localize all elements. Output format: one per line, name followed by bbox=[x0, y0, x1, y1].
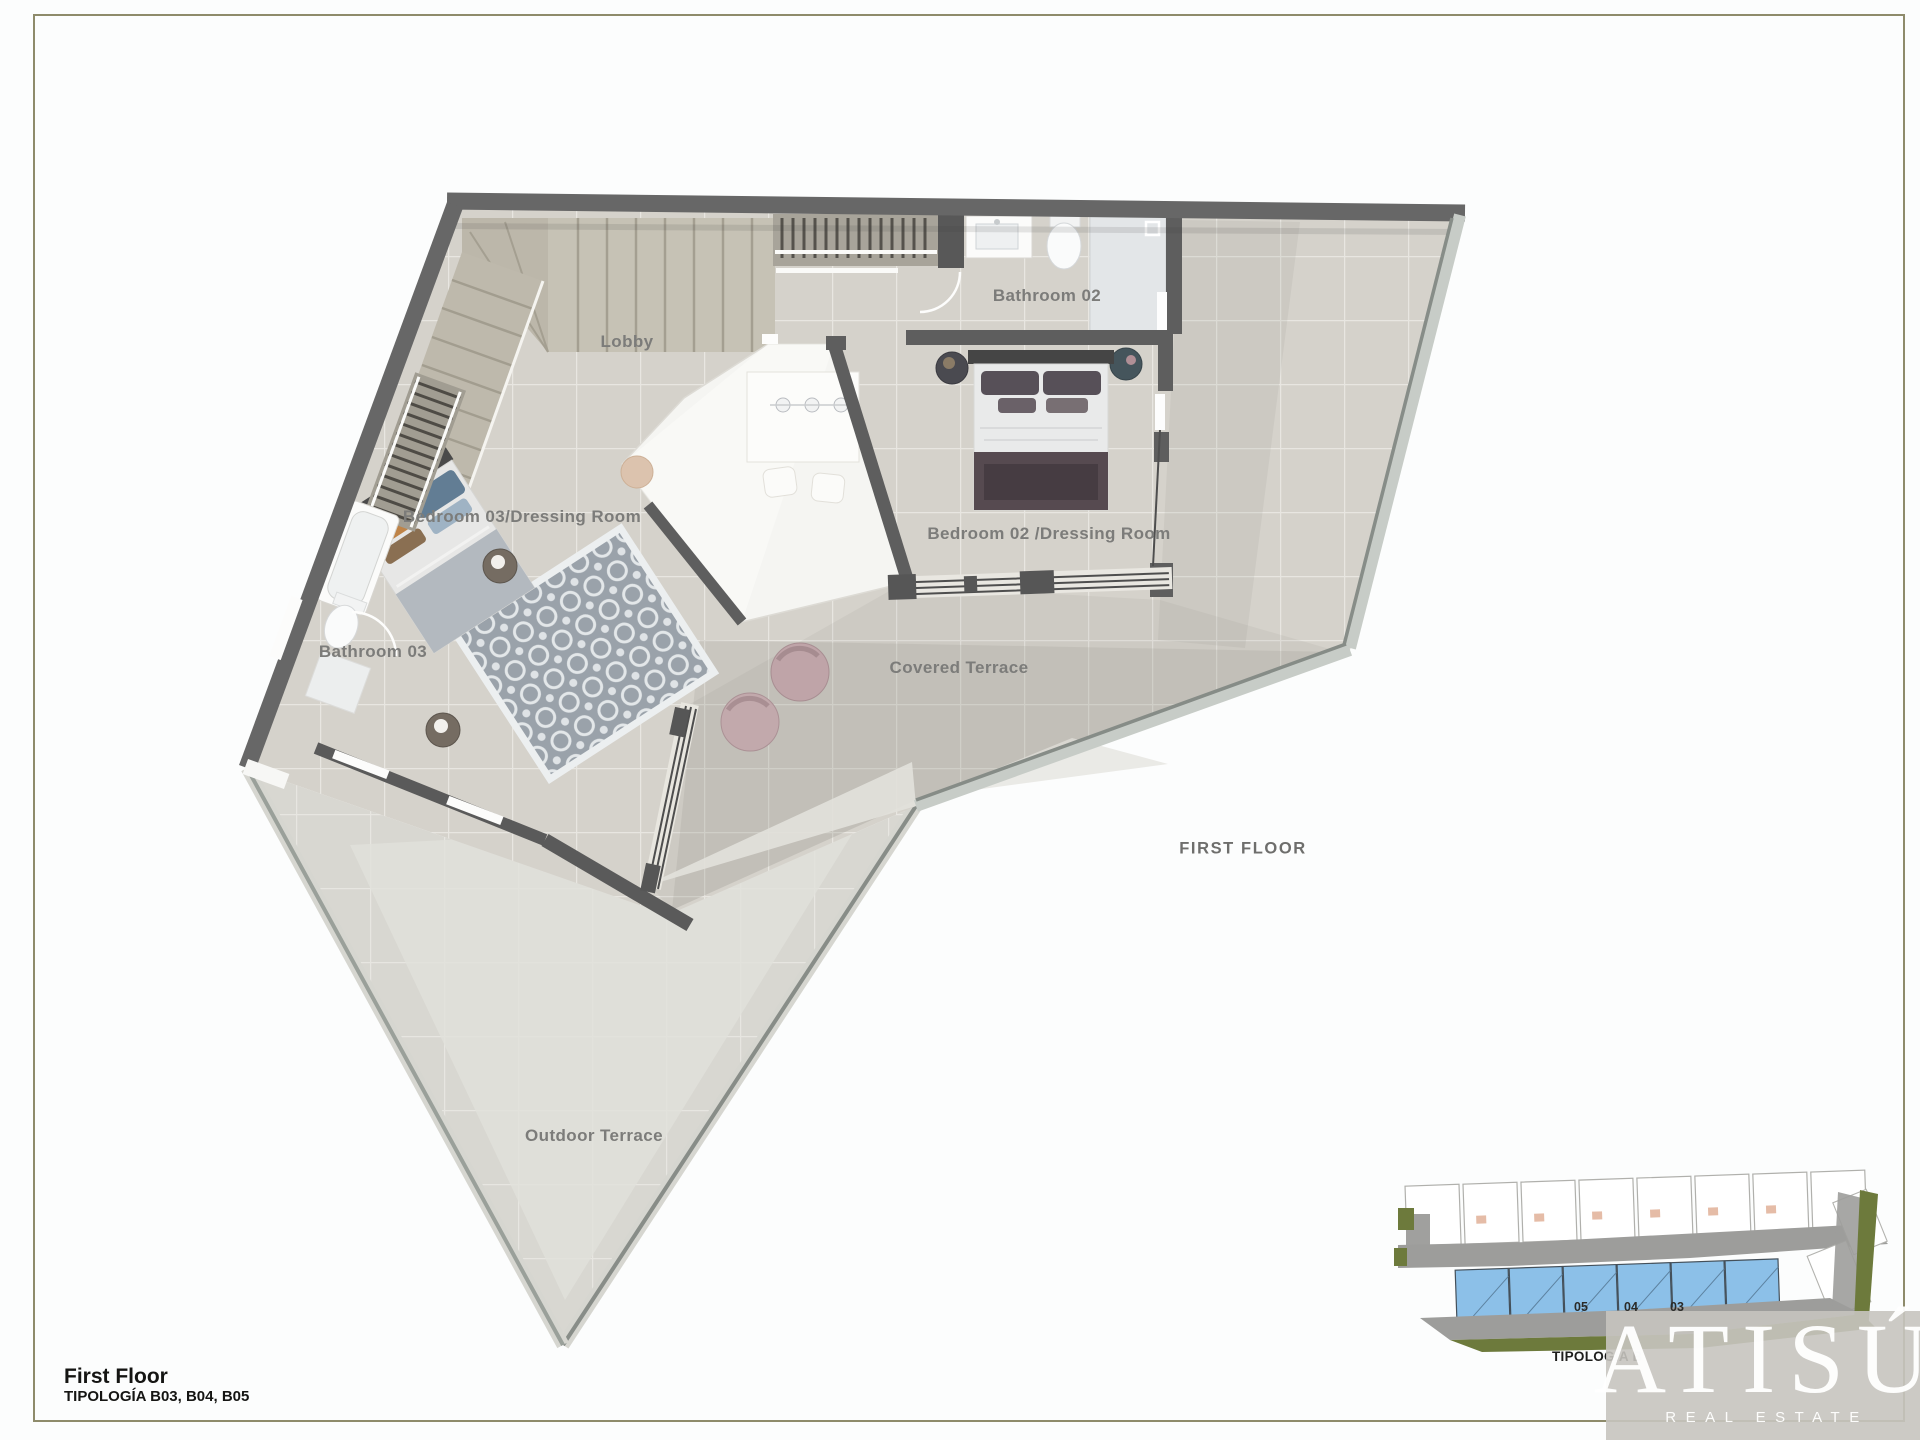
brand-logo: ATISÚ REAL ESTATE bbox=[1606, 1311, 1920, 1440]
room-label-bathroom-03: Bathroom 03 bbox=[319, 642, 427, 662]
room-label-bedroom-02: Bedroom 02 /Dressing Room bbox=[927, 524, 1170, 544]
room-label-outdoor-terrace: Outdoor Terrace bbox=[525, 1126, 663, 1146]
room-label-covered-terrace: Covered Terrace bbox=[890, 658, 1029, 678]
room-label-bedroom-03: Bedroom 03/Dressing Room bbox=[403, 507, 641, 527]
room-label-lobby: Lobby bbox=[601, 332, 654, 352]
room-label-bathroom-02: Bathroom 02 bbox=[993, 286, 1101, 306]
site-plan-unit-05: 05 bbox=[1574, 1300, 1588, 1314]
plan-subtitle: TIPOLOGÍA B03, B04, B05 bbox=[64, 1388, 249, 1405]
floor-plan-page: Lobby Bathroom 02 Bedroom 03/Dressing Ro… bbox=[0, 0, 1920, 1440]
floor-annotation: FIRST FLOOR bbox=[1179, 840, 1307, 859]
brand-name: ATISÚ bbox=[1594, 1313, 1920, 1405]
title-block: First Floor TIPOLOGÍA B03, B04, B05 bbox=[64, 1366, 249, 1405]
lobby-wardrobe bbox=[773, 212, 964, 273]
brand-tagline: REAL ESTATE bbox=[1665, 1409, 1868, 1426]
plan-title: First Floor bbox=[64, 1366, 249, 1388]
